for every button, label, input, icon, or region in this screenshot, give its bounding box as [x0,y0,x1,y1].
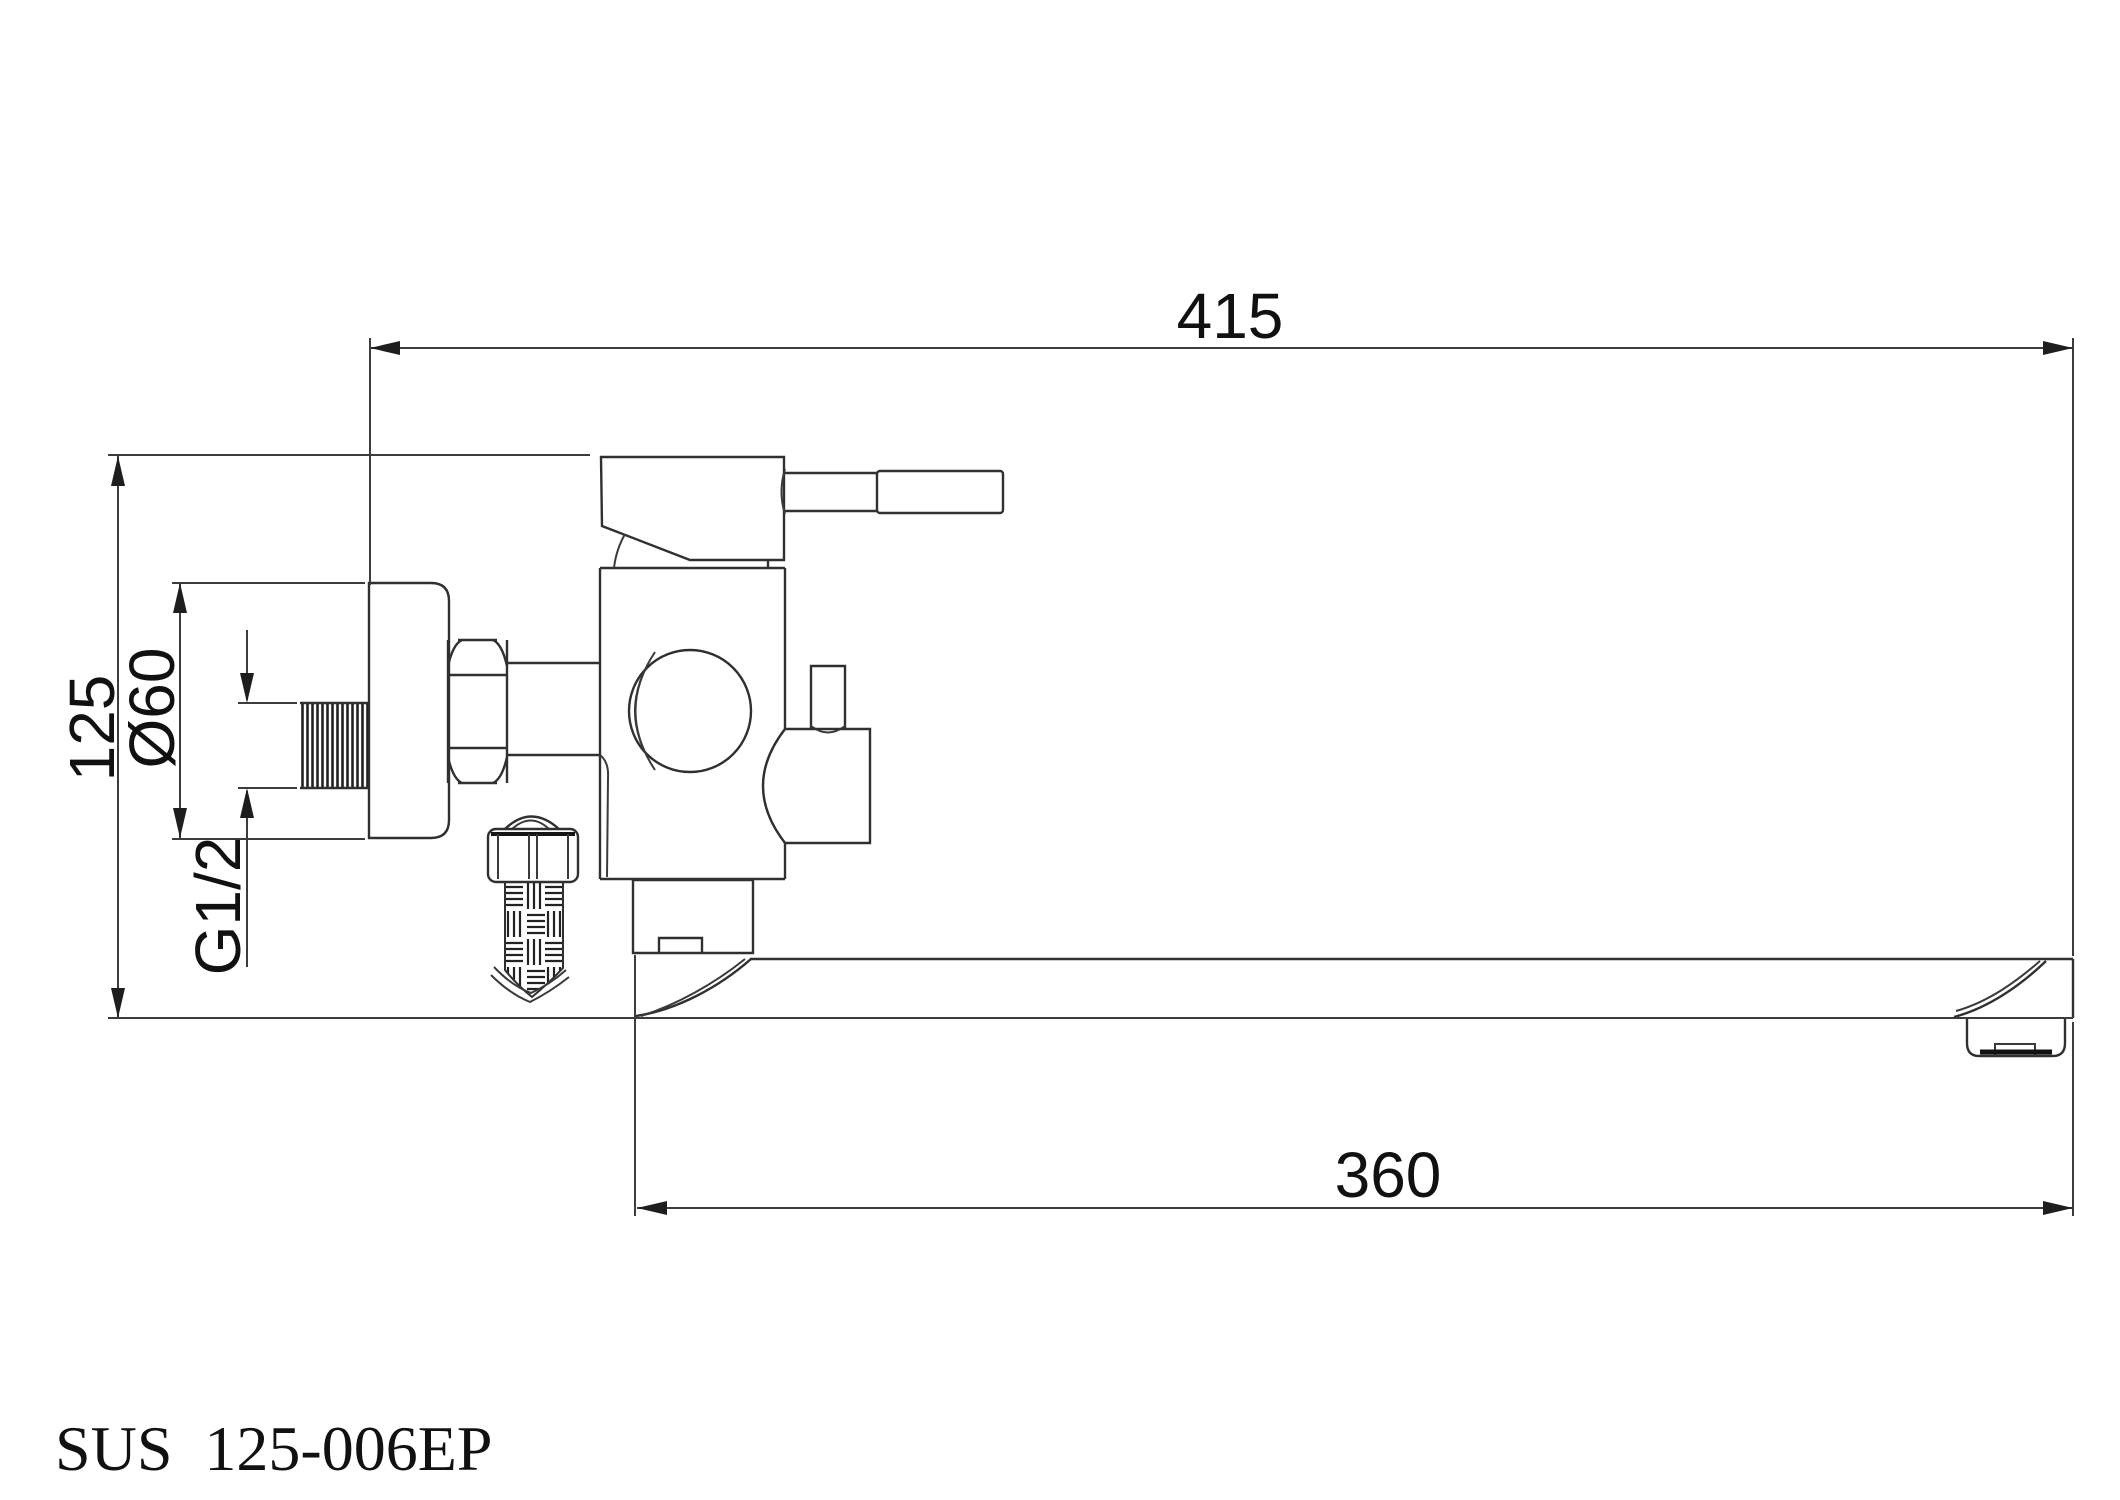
lever-handle [782,469,1004,514]
dim-label-360: 360 [1335,1139,1442,1211]
cartridge-cap [601,457,784,568]
inlet-cylinder [507,663,600,755]
wall-flange [369,583,449,838]
dim-label-415: 415 [1177,280,1284,352]
wall-thread [300,703,369,788]
technical-drawing-canvas: 415 360 125 Ø60 [0,0,2120,1500]
part-number: SUS 125-006EP [55,1413,492,1484]
spout-collar [633,880,753,953]
diverter-knob [629,650,751,772]
dimension-overall-length: 415 [370,280,2073,956]
hex-nut [448,640,507,783]
dim-label-g12: G1/2 [182,837,254,976]
faucet-dimension-drawing: 415 360 125 Ø60 [0,0,2120,1500]
dimension-spout-reach: 360 [635,955,2073,1216]
side-boss [763,729,870,843]
faucet-outline [300,457,2073,1056]
dimension-thread-size: G1/2 [182,630,297,975]
side-button [811,666,845,733]
spout [636,959,2073,1018]
dim-label-d60: Ø60 [116,648,188,769]
aerator [1967,1019,2065,1056]
valve-body [600,568,785,879]
shower-hose [488,817,578,1003]
